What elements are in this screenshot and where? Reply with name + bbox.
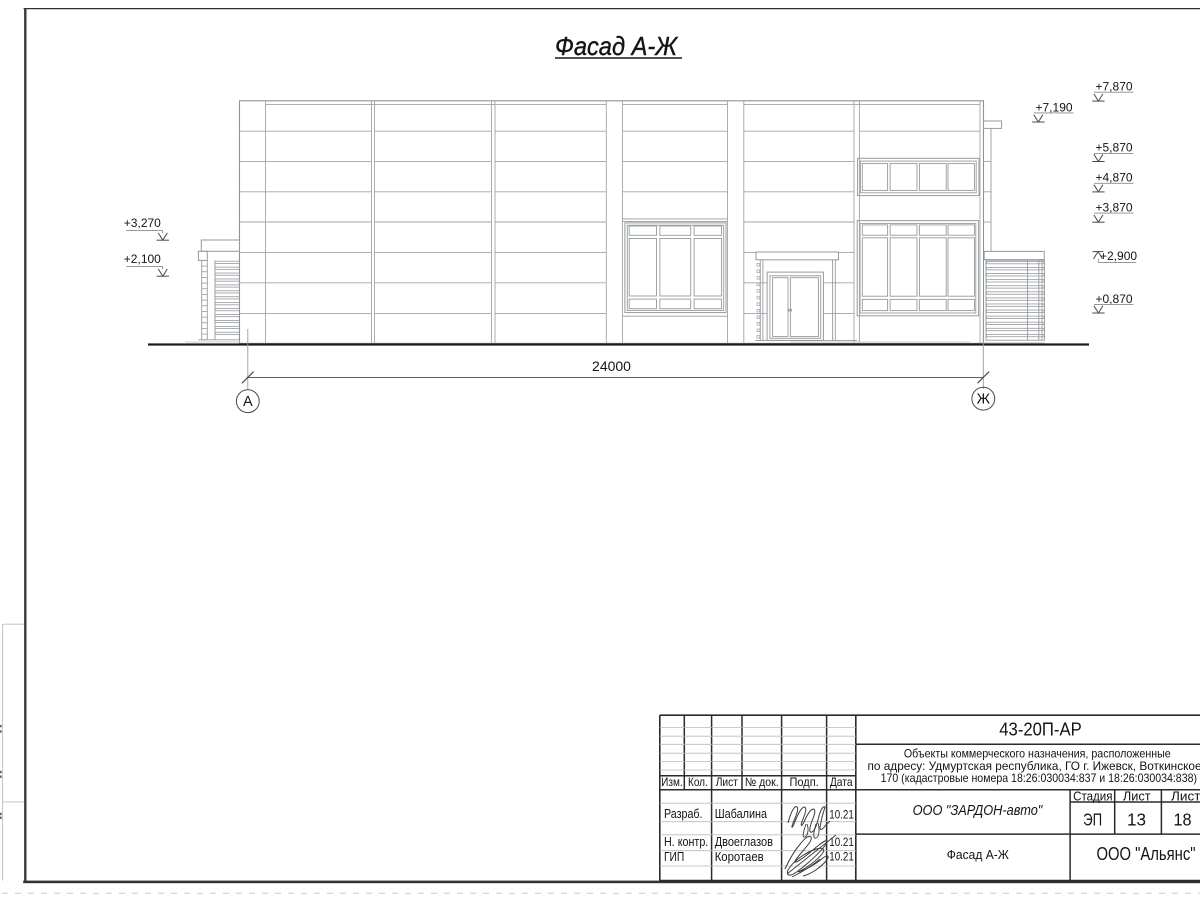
svg-text:10.21: 10.21 <box>829 852 854 864</box>
svg-text:Фасад А-Ж: Фасад А-Ж <box>947 848 1010 862</box>
svg-text:+3,270: +3,270 <box>124 216 161 230</box>
svg-text:+0,870: +0,870 <box>1096 292 1133 306</box>
svg-text:ООО "Альянс": ООО "Альянс" <box>1096 843 1195 864</box>
svg-text:18: 18 <box>1173 809 1191 829</box>
svg-text:Листов: Листов <box>1171 789 1200 803</box>
svg-text:Коротаев: Коротаев <box>715 849 764 864</box>
svg-text:+7,190: +7,190 <box>1036 100 1073 114</box>
svg-text:Лист: Лист <box>716 775 739 789</box>
svg-text:Двоеглазов: Двоеглазов <box>715 834 773 849</box>
svg-text:170 (кадастровые номера 18:26:: 170 (кадастровые номера 18:26:030034:837… <box>881 771 1197 785</box>
svg-text:Кол.: Кол. <box>688 775 708 789</box>
svg-text:ООО "ЗАРДОН-авто": ООО "ЗАРДОН-авто" <box>913 803 1043 819</box>
svg-text:24000: 24000 <box>592 358 631 374</box>
svg-text:43-20П-АР: 43-20П-АР <box>999 719 1082 740</box>
svg-text:Стадия: Стадия <box>1073 789 1112 803</box>
svg-text:А: А <box>243 394 253 410</box>
svg-text:№ док.: № док. <box>745 775 779 789</box>
svg-text:Шабалина: Шабалина <box>715 806 768 821</box>
svg-text:Разраб.: Разраб. <box>664 807 703 821</box>
svg-text:+7,870: +7,870 <box>1096 80 1133 94</box>
svg-text:+4,870: +4,870 <box>1096 171 1133 185</box>
svg-text:Подп.: Подп. <box>790 775 819 789</box>
svg-text:10.21: 10.21 <box>829 810 854 822</box>
svg-text:13: 13 <box>1127 809 1146 829</box>
svg-text:Фасад А-Ж: Фасад А-Ж <box>555 31 679 61</box>
svg-text:+3,870: +3,870 <box>1096 200 1133 214</box>
svg-text:Н. контр.: Н. контр. <box>664 835 708 849</box>
svg-text:10.21: 10.21 <box>829 837 854 849</box>
svg-text:Дата: Дата <box>830 775 853 789</box>
svg-text:ЭП: ЭП <box>1083 809 1102 829</box>
svg-text:+5,870: +5,870 <box>1096 141 1133 155</box>
svg-text:Изм.: Изм. <box>661 775 683 789</box>
svg-text:Лист: Лист <box>1123 789 1151 803</box>
svg-text:+2,100: +2,100 <box>124 252 161 266</box>
svg-text:+2,900: +2,900 <box>1100 249 1137 263</box>
svg-text:ГИП: ГИП <box>664 850 684 864</box>
svg-text:Ж: Ж <box>977 392 991 408</box>
